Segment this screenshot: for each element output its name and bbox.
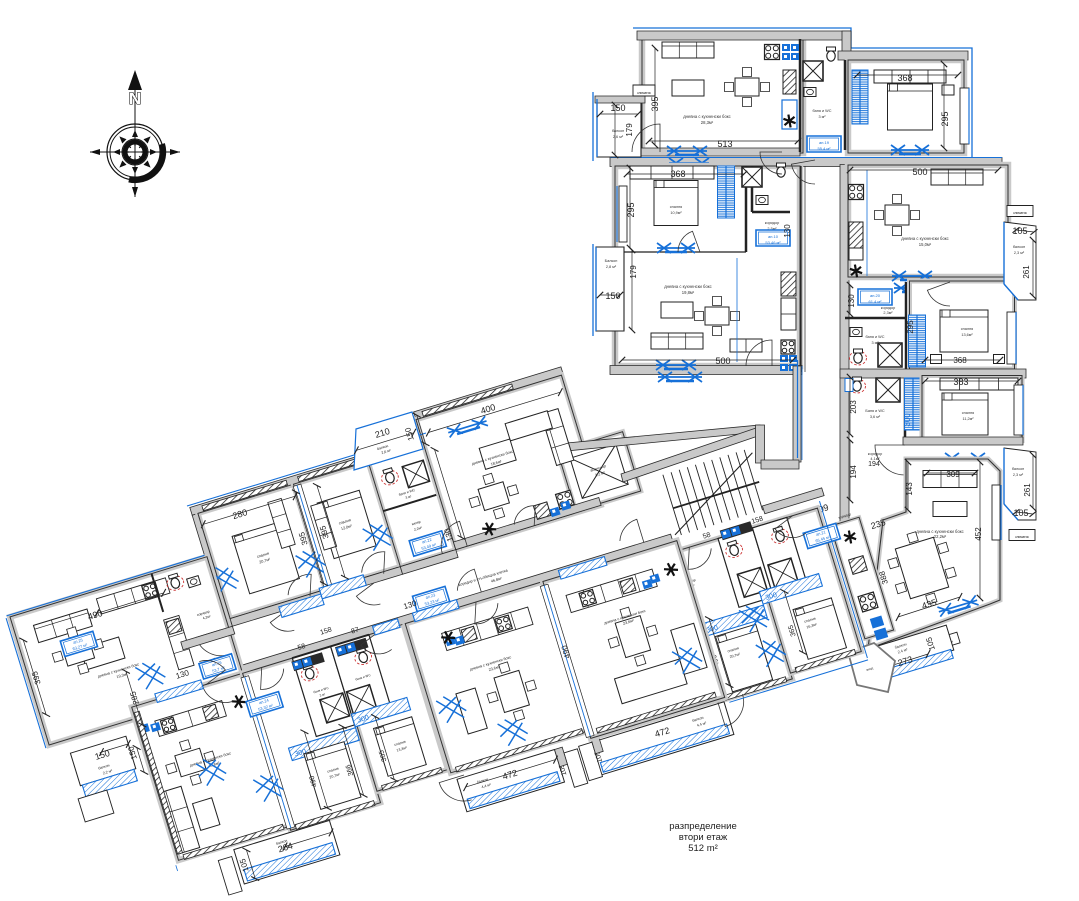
svg-text:194: 194 (868, 461, 880, 468)
svg-text:19,8м²: 19,8м² (682, 290, 695, 295)
svg-text:28,3м²: 28,3м² (701, 120, 714, 125)
svg-text:295: 295 (906, 320, 915, 334)
svg-text:баня и WC: баня и WC (813, 109, 832, 113)
svg-text:коридор: коридор (765, 221, 780, 225)
svg-text:300: 300 (903, 413, 912, 427)
svg-text:балкон: балкон (612, 129, 624, 133)
svg-text:383: 383 (953, 377, 968, 387)
svg-text:коридор: коридор (868, 452, 883, 456)
svg-text:3 м²: 3 м² (871, 341, 879, 345)
svg-text:3,6 м²: 3,6 м² (870, 415, 881, 419)
svg-text:2,6 м²: 2,6 м² (613, 135, 624, 139)
svg-text:2,3 м²: 2,3 м² (1014, 251, 1025, 255)
svg-text:ап.10: ап.10 (768, 234, 779, 239)
svg-text:спалня: спалня (962, 411, 974, 415)
svg-text:309: 309 (946, 470, 960, 479)
svg-text:2,8 м²: 2,8 м² (606, 265, 617, 269)
svg-text:Балкон: Балкон (605, 259, 618, 263)
svg-text:климатик: климатик (1015, 535, 1029, 539)
svg-text:368: 368 (897, 73, 912, 83)
svg-text:13,6м²: 13,6м² (961, 333, 973, 337)
svg-text:ап.20: ап.20 (870, 293, 881, 298)
svg-text:179: 179 (629, 265, 638, 279)
svg-text:261: 261 (1023, 483, 1032, 497)
svg-text:10,9м²: 10,9м² (670, 211, 682, 215)
svg-text:452: 452 (974, 527, 983, 541)
svg-text:512 m²: 512 m² (688, 843, 718, 854)
svg-text:295: 295 (940, 111, 950, 126)
svg-text:2,3 м²: 2,3 м² (1013, 473, 1024, 477)
svg-text:55,4 м²: 55,4 м² (818, 146, 832, 151)
svg-text:дневна с кухненски бокс: дневна с кухненски бокс (901, 236, 949, 241)
svg-text:53,46 м²: 53,46 м² (765, 240, 781, 245)
svg-text:разпределение: разпределение (669, 821, 737, 832)
svg-text:спалня: спалня (961, 327, 973, 331)
svg-text:2,3м²: 2,3м² (883, 311, 893, 315)
svg-text:143: 143 (905, 482, 914, 496)
svg-text:коридор: коридор (881, 306, 896, 310)
svg-text:513: 513 (717, 139, 732, 149)
svg-text:климатик: климатик (637, 91, 651, 95)
svg-text:балкон: балкон (1013, 245, 1025, 249)
svg-text:295: 295 (626, 202, 636, 217)
svg-text:261: 261 (1022, 265, 1031, 279)
svg-text:15,0м²: 15,0м² (919, 242, 932, 247)
svg-text:дневна с кухненски бокс: дневна с кухненски бокс (683, 114, 731, 119)
svg-text:втори етаж: втори етаж (679, 832, 728, 843)
svg-text:N: N (129, 89, 141, 108)
svg-text:баня и WC: баня и WC (866, 335, 885, 339)
svg-text:61,4 м²: 61,4 м² (869, 299, 883, 304)
svg-text:балкон: балкон (1012, 467, 1024, 471)
svg-text:дневна с кухненски бокс: дневна с кухненски бокс (664, 284, 712, 289)
svg-text:22,2м²: 22,2м² (934, 534, 947, 539)
svg-text:спалня: спалня (670, 205, 682, 209)
svg-text:130: 130 (847, 294, 856, 308)
svg-text:климатик: климатик (1013, 211, 1027, 215)
svg-text:500: 500 (912, 167, 927, 177)
svg-text:3 м²: 3 м² (818, 115, 826, 119)
svg-text:368: 368 (953, 356, 967, 365)
svg-text:11,2м²: 11,2м² (963, 417, 975, 421)
svg-text:130: 130 (783, 224, 792, 238)
svg-text:Баня и WC: Баня и WC (865, 409, 885, 413)
svg-text:500: 500 (715, 356, 730, 366)
svg-text:ап.19: ап.19 (819, 140, 830, 145)
svg-text:179: 179 (625, 123, 634, 137)
